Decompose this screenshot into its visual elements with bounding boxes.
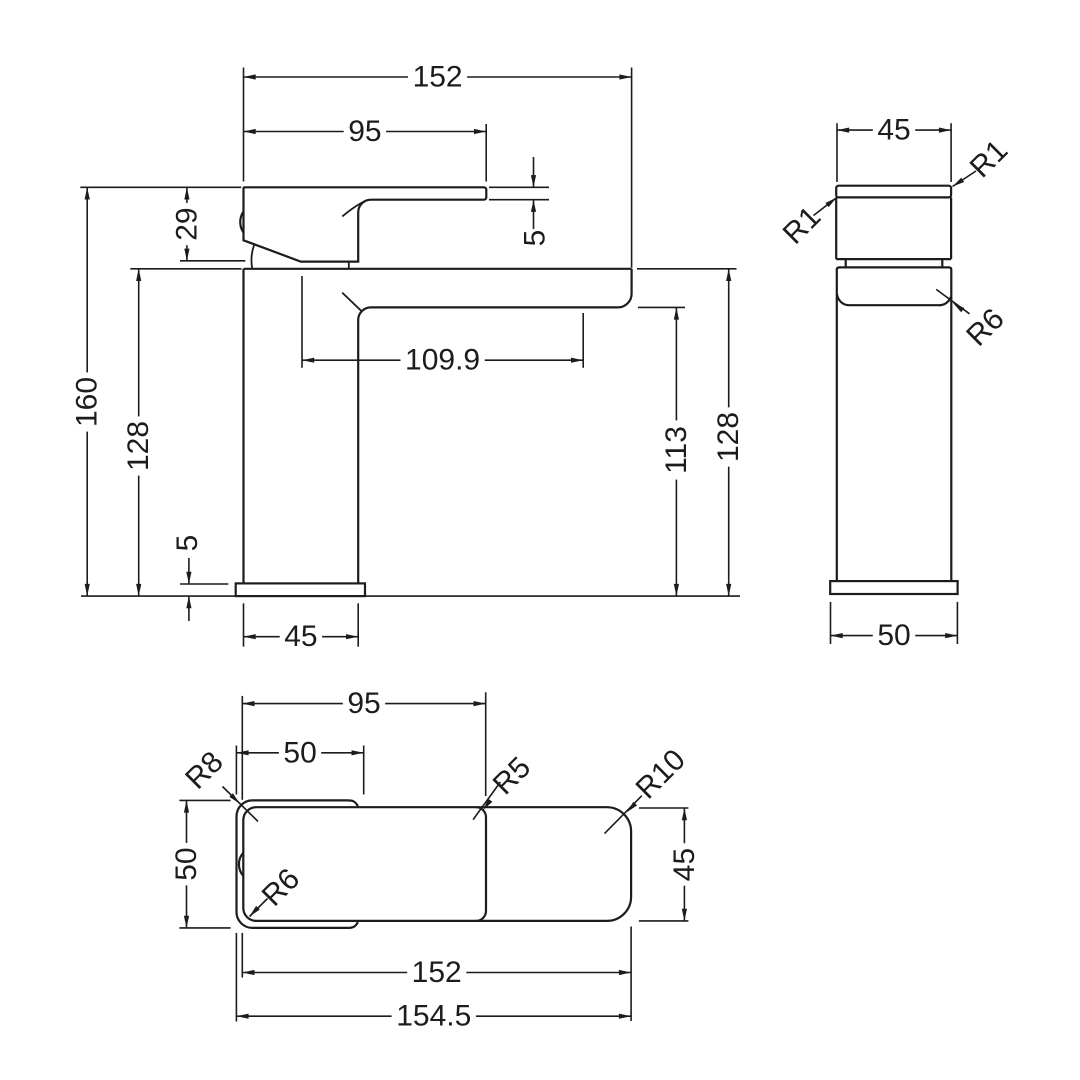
svg-text:R8: R8 bbox=[179, 745, 229, 795]
svg-text:95: 95 bbox=[348, 115, 381, 148]
svg-text:29: 29 bbox=[170, 207, 203, 240]
svg-text:128: 128 bbox=[122, 421, 155, 471]
svg-text:128: 128 bbox=[712, 412, 745, 462]
svg-text:45: 45 bbox=[668, 848, 701, 881]
svg-text:154.5: 154.5 bbox=[396, 1000, 471, 1033]
svg-text:R6: R6 bbox=[960, 302, 1010, 352]
svg-text:160: 160 bbox=[71, 377, 104, 427]
svg-text:45: 45 bbox=[877, 114, 910, 147]
svg-text:50: 50 bbox=[170, 847, 203, 880]
svg-text:152: 152 bbox=[413, 61, 463, 94]
svg-text:5: 5 bbox=[171, 535, 204, 552]
svg-text:R1: R1 bbox=[964, 134, 1014, 184]
svg-text:113: 113 bbox=[660, 426, 693, 474]
svg-text:50: 50 bbox=[877, 619, 910, 652]
svg-text:R5: R5 bbox=[487, 751, 537, 801]
svg-text:R6: R6 bbox=[256, 862, 306, 912]
svg-text:109.9: 109.9 bbox=[405, 344, 480, 377]
svg-text:50: 50 bbox=[283, 736, 316, 769]
svg-text:R10: R10 bbox=[630, 743, 692, 805]
svg-text:45: 45 bbox=[284, 620, 317, 653]
svg-text:5: 5 bbox=[519, 230, 552, 247]
svg-text:152: 152 bbox=[412, 956, 462, 989]
svg-text:R1: R1 bbox=[777, 200, 827, 250]
svg-text:95: 95 bbox=[347, 687, 380, 720]
